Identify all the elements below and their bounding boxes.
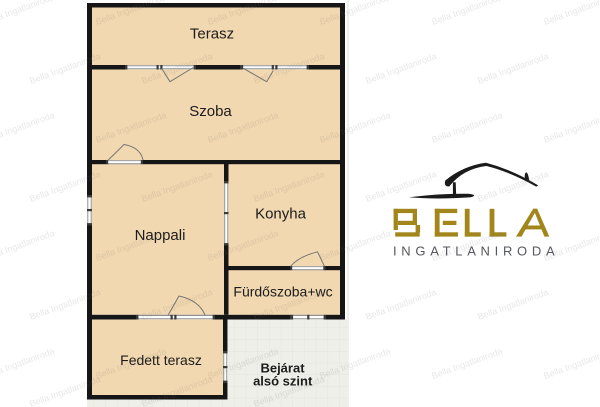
svg-text:Bella Ingatlaniroda: Bella Ingatlaniroda (364, 169, 437, 204)
svg-text:Bella Ingatlaniroda: Bella Ingatlaniroda (542, 0, 600, 27)
svg-text:Bella Ingatlaniroda: Bella Ingatlaniroda (430, 110, 503, 145)
svg-text:Bella Ingatlaniroda: Bella Ingatlaniroda (0, 346, 56, 381)
svg-text:Bella Ingatlaniroda: Bella Ingatlaniroda (364, 287, 437, 322)
svg-text:Terasz: Terasz (190, 26, 234, 43)
svg-text:Bella Ingatlaniroda: Bella Ingatlaniroda (476, 287, 549, 322)
svg-text:Konyha: Konyha (255, 206, 307, 223)
svg-text:Bella Ingatlaniroda: Bella Ingatlaniroda (430, 346, 503, 381)
svg-text:Bella Ingatlaniroda: Bella Ingatlaniroda (430, 0, 503, 27)
svg-text:Bella Ingatlaniroda: Bella Ingatlaniroda (0, 110, 56, 145)
svg-text:Bella Ingatlaniroda: Bella Ingatlaniroda (476, 51, 549, 86)
svg-text:Bella Ingatlaniroda: Bella Ingatlaniroda (542, 110, 600, 145)
svg-text:Bella Ingatlaniroda: Bella Ingatlaniroda (542, 346, 600, 381)
svg-text:Bella Ingatlaniroda: Bella Ingatlaniroda (364, 51, 437, 86)
svg-text:Bella Ingatlaniroda: Bella Ingatlaniroda (0, 228, 56, 263)
svg-text:Bella Ingatlaniroda: Bella Ingatlaniroda (0, 0, 56, 27)
svg-text:Szoba: Szoba (189, 103, 232, 120)
